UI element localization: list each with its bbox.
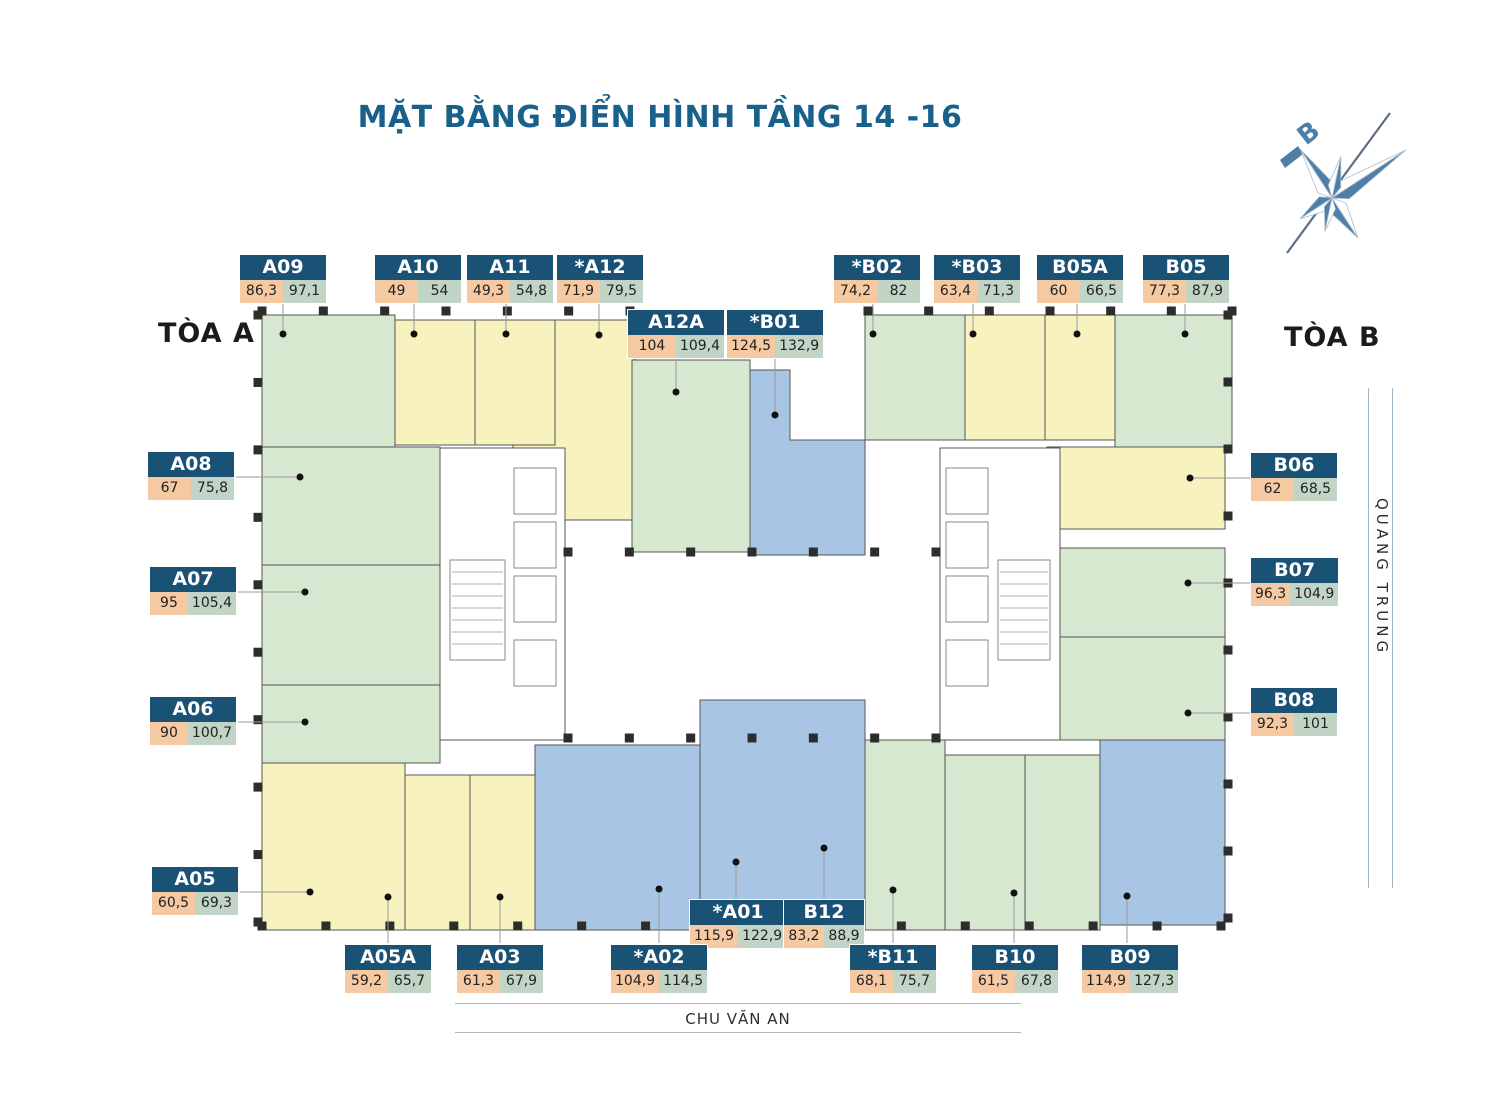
unit-id: A05 (152, 867, 238, 892)
unit-area-gross: 101 (1294, 713, 1337, 736)
unit-label-a05[interactable]: A05 60,569,3 (152, 867, 238, 915)
unit-label-a06[interactable]: A06 90100,7 (150, 697, 236, 745)
unit-zone-b07 (1047, 548, 1225, 637)
unit-area-net: 104,9 (611, 970, 659, 993)
unit-area-gross: 100,7 (188, 722, 236, 745)
unit-area-net: 77,3 (1143, 280, 1186, 303)
unit-area-net: 68,1 (850, 970, 893, 993)
unit-label-b10[interactable]: B10 61,567,8 (972, 945, 1058, 993)
core-left (440, 448, 565, 740)
unit-area-net: 60 (1037, 280, 1080, 303)
tower-a-label: TÒA A (158, 318, 255, 349)
core-right (940, 448, 1060, 740)
unit-area-gross: 114,5 (659, 970, 707, 993)
unit-id: A07 (150, 567, 236, 592)
unit-label-b01[interactable]: *B01 124,5132,9 (727, 310, 823, 358)
unit-zone-a03 (470, 775, 535, 930)
unit-area-net: 83,2 (784, 925, 824, 948)
unit-area-gross: 67,9 (500, 970, 543, 993)
unit-label-b05[interactable]: B05 77,387,9 (1143, 255, 1229, 303)
unit-area-net: 86,3 (240, 280, 283, 303)
unit-label-b08[interactable]: B08 92,3101 (1251, 688, 1337, 736)
floor-plan-page: MẶT BẰNG ĐIỂN HÌNH TẦNG 14 -16 TÒA A TÒA… (0, 0, 1500, 1107)
unit-area-gross: 105,4 (188, 592, 236, 615)
unit-id: B05 (1143, 255, 1229, 280)
unit-label-a02[interactable]: *A02 104,9114,5 (611, 945, 707, 993)
unit-area-gross: 69,3 (195, 892, 238, 915)
unit-id: B12 (784, 900, 864, 925)
unit-area-gross: 54 (418, 280, 461, 303)
unit-area-net: 61,5 (972, 970, 1015, 993)
unit-area-gross: 127,3 (1130, 970, 1178, 993)
unit-zone-a05a (405, 775, 470, 930)
unit-zone-b06 (1047, 447, 1225, 529)
unit-label-a05a[interactable]: A05A 59,265,7 (345, 945, 431, 993)
unit-id: *B02 (834, 255, 920, 280)
unit-id: A10 (375, 255, 461, 280)
unit-label-a08[interactable]: A08 6775,8 (148, 452, 234, 500)
unit-zone-b01 (750, 370, 865, 555)
unit-label-a11[interactable]: A11 49,354,8 (467, 255, 553, 303)
unit-area-gross: 109,4 (676, 335, 724, 358)
unit-area-net: 96,3 (1251, 583, 1290, 606)
unit-id: A05A (345, 945, 431, 970)
unit-zone-b02 (865, 315, 965, 440)
street-quang-trung: QUANG TRUNG (1368, 388, 1396, 888)
unit-area-net: 95 (150, 592, 188, 615)
unit-area-gross: 132,9 (775, 335, 823, 358)
unit-area-gross: 66,5 (1080, 280, 1123, 303)
unit-zone-a12a (632, 360, 750, 552)
unit-label-b07[interactable]: B07 96,3104,9 (1251, 558, 1338, 606)
unit-id: A12A (628, 310, 724, 335)
unit-area-net: 49 (375, 280, 418, 303)
unit-id: A06 (150, 697, 236, 722)
unit-area-net: 71,9 (557, 280, 600, 303)
unit-area-gross: 79,5 (600, 280, 643, 303)
unit-label-a12[interactable]: *A12 71,979,5 (557, 255, 643, 303)
unit-label-a07[interactable]: A07 95105,4 (150, 567, 236, 615)
street-quang-trung-label: QUANG TRUNG (1373, 498, 1391, 656)
unit-zone-a07 (262, 565, 440, 685)
unit-area-net: 104 (628, 335, 676, 358)
unit-area-net: 49,3 (467, 280, 510, 303)
street-chu-van-an-label: CHU VĂN AN (455, 1010, 1021, 1028)
unit-zone-b12 (865, 740, 945, 930)
unit-id: B07 (1251, 558, 1338, 583)
unit-zone-b05 (1115, 315, 1232, 447)
unit-area-net: 59,2 (345, 970, 388, 993)
unit-id: A08 (148, 452, 234, 477)
unit-area-gross: 97,1 (283, 280, 326, 303)
compass-icon: B (1262, 82, 1437, 257)
unit-zone-b11 (945, 755, 1025, 930)
unit-area-gross: 54,8 (510, 280, 553, 303)
unit-label-a01[interactable]: *A01 115,9122,9 (690, 900, 786, 948)
unit-zone-a10 (395, 320, 475, 445)
unit-area-net: 61,3 (457, 970, 500, 993)
unit-label-a03[interactable]: A03 61,367,9 (457, 945, 543, 993)
unit-id: B09 (1082, 945, 1178, 970)
unit-zone-b09 (1100, 740, 1225, 925)
unit-area-gross: 122,9 (738, 925, 786, 948)
unit-area-gross: 67,8 (1015, 970, 1058, 993)
unit-label-b02[interactable]: *B02 74,282 (834, 255, 920, 303)
unit-area-net: 124,5 (727, 335, 775, 358)
unit-area-net: 60,5 (152, 892, 195, 915)
unit-area-gross: 68,5 (1294, 478, 1337, 501)
unit-label-a12a[interactable]: A12A 104109,4 (628, 310, 724, 358)
compass-rose: B (1262, 82, 1437, 257)
unit-id: B06 (1251, 453, 1337, 478)
unit-label-b11[interactable]: *B11 68,175,7 (850, 945, 936, 993)
page-title: MẶT BẰNG ĐIỂN HÌNH TẦNG 14 -16 (0, 100, 1320, 135)
unit-label-a10[interactable]: A10 4954 (375, 255, 461, 303)
unit-zone-a06 (262, 685, 440, 763)
street-chu-van-an: CHU VĂN AN (455, 1003, 1021, 1037)
unit-zone-b03 (965, 315, 1045, 440)
compass-north-text: B (1292, 116, 1326, 152)
unit-label-b12[interactable]: B12 83,288,9 (784, 900, 864, 948)
unit-area-net: 92,3 (1251, 713, 1294, 736)
unit-label-b06[interactable]: B06 6268,5 (1251, 453, 1337, 501)
unit-zone-a05 (262, 763, 405, 930)
unit-area-gross: 82 (877, 280, 920, 303)
unit-area-gross: 71,3 (977, 280, 1020, 303)
unit-id: *A02 (611, 945, 707, 970)
unit-area-net: 67 (148, 477, 191, 500)
unit-area-net: 114,9 (1082, 970, 1130, 993)
unit-id: A11 (467, 255, 553, 280)
unit-id: *A12 (557, 255, 643, 280)
unit-zone-a11 (475, 320, 555, 445)
unit-area-net: 63,4 (934, 280, 977, 303)
unit-label-b09[interactable]: B09 114,9127,3 (1082, 945, 1178, 993)
tower-b-label: TÒA B (1284, 322, 1381, 353)
unit-id: *B11 (850, 945, 936, 970)
unit-id: A03 (457, 945, 543, 970)
unit-area-gross: 75,8 (191, 477, 234, 500)
unit-area-gross: 65,7 (388, 970, 431, 993)
unit-id: B05A (1037, 255, 1123, 280)
unit-id: A09 (240, 255, 326, 280)
unit-area-net: 62 (1251, 478, 1294, 501)
unit-id: *B01 (727, 310, 823, 335)
unit-id: *B03 (934, 255, 1020, 280)
unit-zone-a08 (262, 447, 440, 565)
unit-id: B08 (1251, 688, 1337, 713)
unit-label-b03[interactable]: *B03 63,471,3 (934, 255, 1020, 303)
unit-area-net: 90 (150, 722, 188, 745)
unit-area-net: 74,2 (834, 280, 877, 303)
unit-id: B10 (972, 945, 1058, 970)
unit-label-b05a[interactable]: B05A 6066,5 (1037, 255, 1123, 303)
unit-area-gross: 75,7 (893, 970, 936, 993)
unit-id: *A01 (690, 900, 786, 925)
unit-area-gross: 87,9 (1186, 280, 1229, 303)
unit-area-gross: 104,9 (1290, 583, 1338, 606)
unit-label-a09[interactable]: A09 86,397,1 (240, 255, 326, 303)
unit-zone-b10 (1025, 755, 1100, 930)
